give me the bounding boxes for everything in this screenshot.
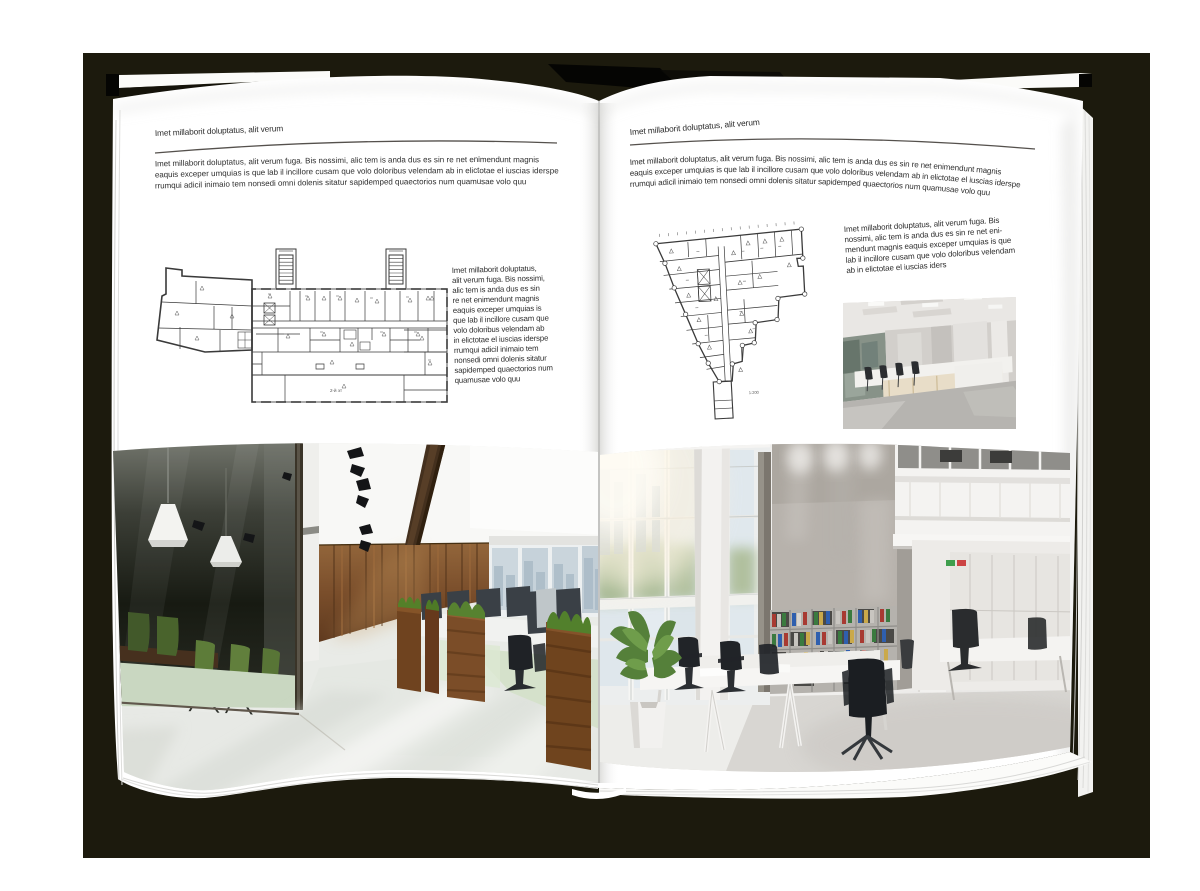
svg-text:2-й эт: 2-й эт — [330, 387, 342, 393]
svg-text:quamusae volo quu: quamusae volo quu — [455, 374, 521, 385]
svg-text:1:200: 1:200 — [749, 390, 760, 396]
